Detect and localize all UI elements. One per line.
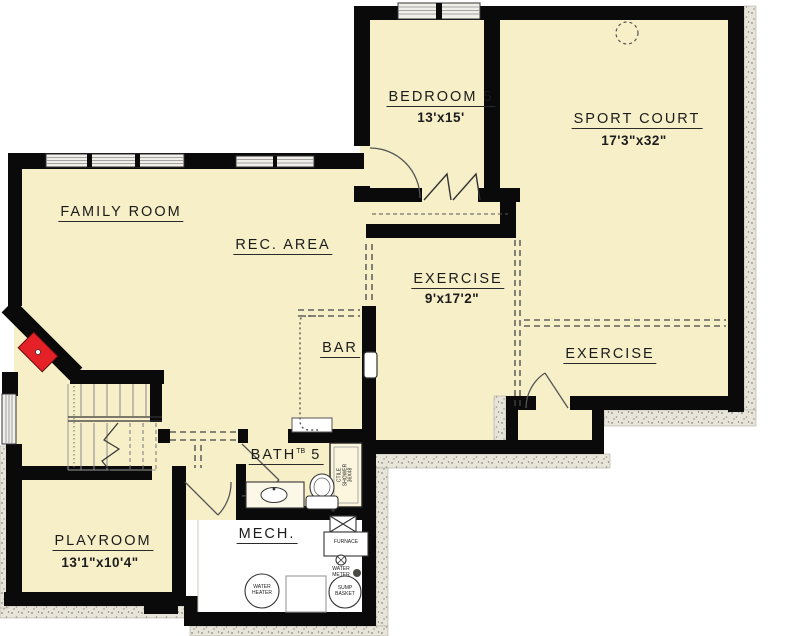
equipment-pad (286, 576, 326, 612)
sump-basket-icon (329, 576, 361, 608)
floor-drain-icon (353, 569, 361, 577)
water-heater-icon (245, 574, 279, 608)
furnace-icon (324, 532, 368, 556)
floorplan-drawing (0, 0, 800, 636)
bar-sink-icon (364, 352, 377, 378)
floor-plan-canvas: FAMILY ROOM REC. AREA BEDROOM 5 13'x15' … (0, 0, 800, 636)
